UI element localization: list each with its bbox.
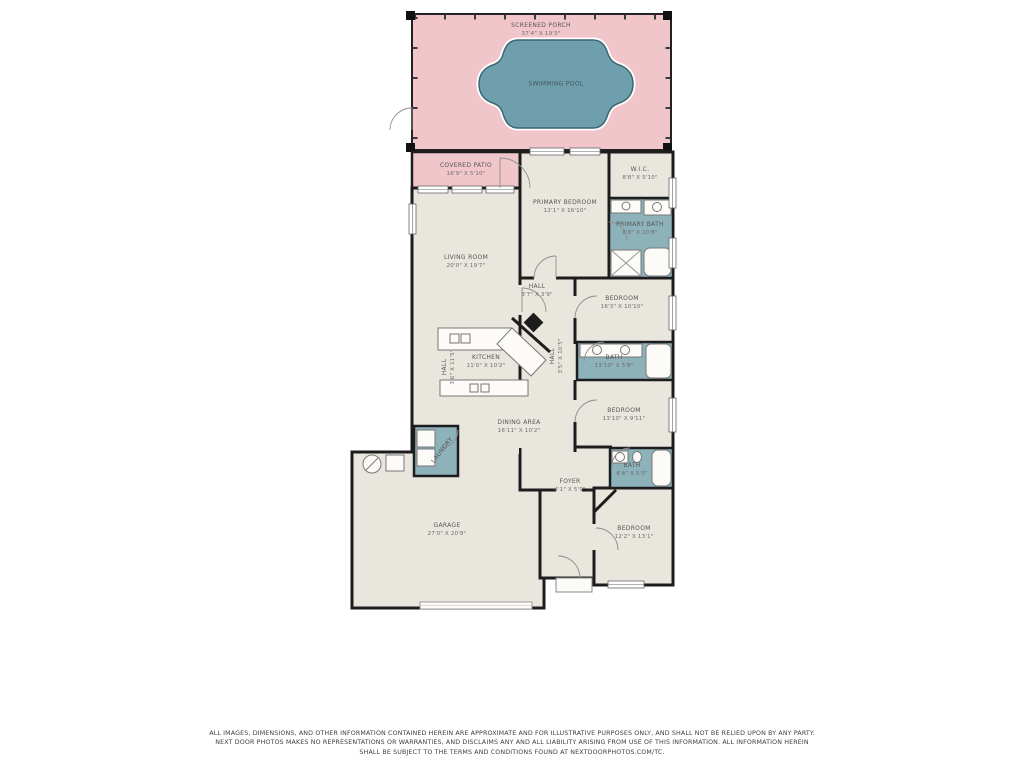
bottom-bedroom-room [594, 488, 673, 585]
stove-burner [470, 384, 478, 392]
sink [593, 346, 602, 355]
living-kitchen-room [412, 188, 522, 450]
sink [621, 346, 630, 355]
kitchen-sink [450, 334, 459, 343]
toilet [633, 452, 642, 463]
disclaimer-line: ALL IMAGES, DIMENSIONS, AND OTHER INFORM… [0, 729, 1024, 738]
sink [622, 202, 630, 210]
stove-burner [481, 384, 489, 392]
entry-stoop [556, 578, 592, 592]
vanity [580, 344, 642, 357]
bathtub [644, 248, 671, 276]
disclaimer-line: SHALL BE SUBJECT TO THE TERMS AND CONDIT… [0, 748, 1024, 757]
kitchen-sink [461, 334, 470, 343]
disclaimer-text: ALL IMAGES, DIMENSIONS, AND OTHER INFORM… [0, 729, 1024, 757]
dryer [417, 449, 435, 466]
floor-plan-page: SCREENED PORCH 37'4" X 19'3" SWIMMING PO… [0, 0, 1024, 768]
swimming-pool-shape [479, 40, 633, 128]
washer [417, 430, 435, 447]
utility-box [386, 455, 404, 471]
toilet [653, 203, 662, 212]
bathtub [652, 450, 671, 486]
bathtub [646, 344, 671, 378]
covered-patio-area [412, 152, 520, 190]
disclaimer-line: NEXT DOOR PHOTOS MAKES NO REPRESENTATION… [0, 738, 1024, 747]
floor-plan-drawing [0, 0, 1024, 768]
